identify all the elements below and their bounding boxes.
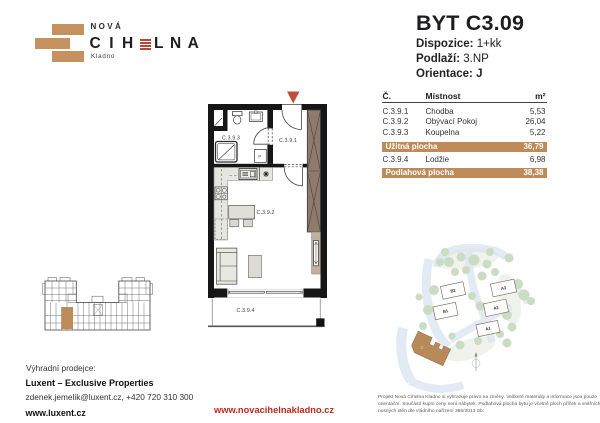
svg-text:C.3.9.3: C.3.9.3	[222, 136, 240, 142]
svg-text:P: P	[258, 154, 261, 159]
svg-text:C.3.9.4: C.3.9.4	[237, 308, 255, 314]
svg-text:C.3.9.1: C.3.9.1	[279, 138, 297, 144]
svg-text:C.3.9.2: C.3.9.2	[257, 210, 275, 216]
